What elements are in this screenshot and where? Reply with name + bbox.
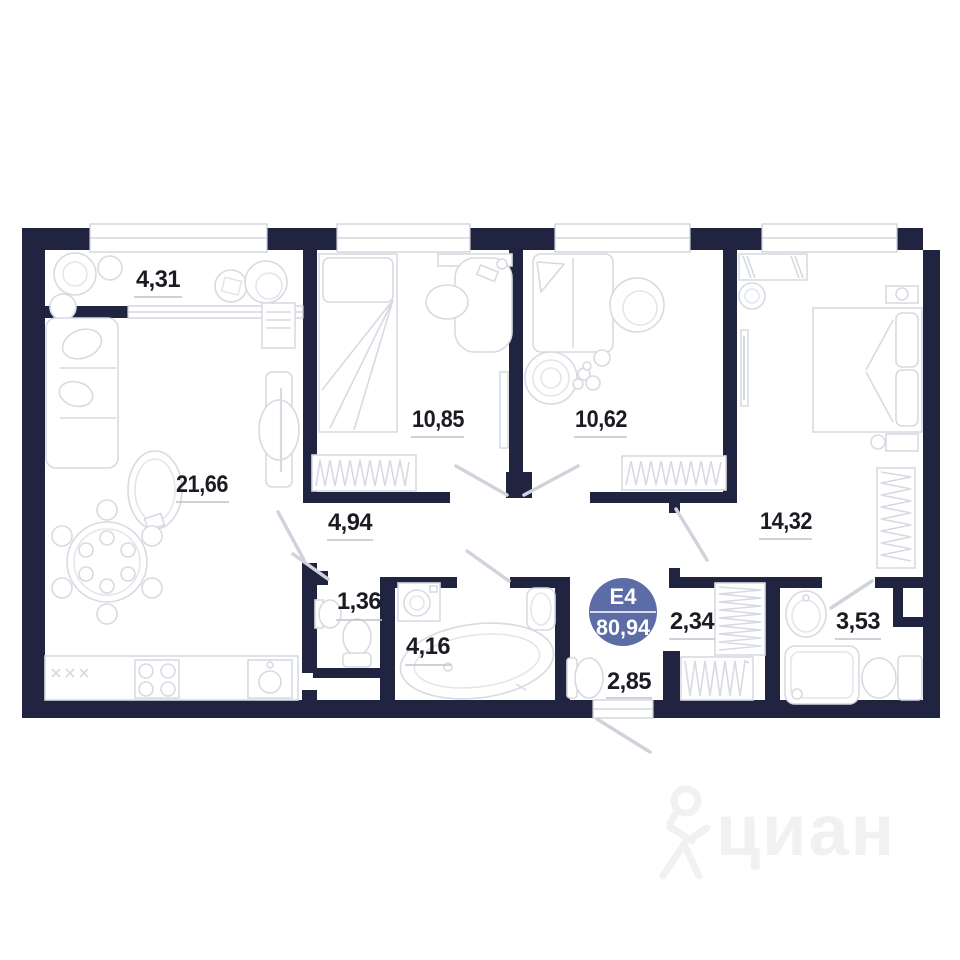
wall-entry-wardrobe <box>663 651 680 707</box>
wall-duct-bottom <box>893 617 923 627</box>
wall-wardrobe-shower <box>765 577 780 707</box>
wall-shower-top <box>875 577 923 588</box>
nightstand-icon <box>886 434 918 451</box>
door-shower-room <box>831 581 872 608</box>
svg-text:4,16: 4,16 <box>406 633 450 660</box>
shower-tray-icon <box>785 646 859 704</box>
door-bedroom3 <box>676 509 707 560</box>
room-label-wc: 1,36 <box>336 588 382 620</box>
wall-bedroom1-bottom <box>303 492 450 503</box>
door-bedroom1 <box>456 466 507 495</box>
badge-total-area: 80,94 <box>596 615 651 640</box>
shower-sink-icon <box>786 591 826 637</box>
round-chair-icon <box>610 278 664 332</box>
kitchen-counter-icon <box>45 656 298 700</box>
room-label-bedroom2: 10,62 <box>574 406 627 437</box>
hanger-rack-icon <box>681 583 765 700</box>
balcony-chair-icon <box>215 261 287 303</box>
door-jamb-bottom <box>669 568 680 588</box>
toilet-icon <box>567 658 603 698</box>
sink-icon <box>527 588 555 630</box>
mirror-icon <box>500 372 508 448</box>
svg-text:14,32: 14,32 <box>760 508 812 535</box>
svg-text:1,36: 1,36 <box>337 588 381 615</box>
room-label-shower: 3,53 <box>835 608 881 639</box>
plant-small-icon <box>573 350 610 390</box>
tv-icon <box>741 330 748 406</box>
svg-text:4,94: 4,94 <box>328 509 373 536</box>
watermark-text: циан <box>716 791 896 871</box>
wall-bottom-left <box>22 700 593 718</box>
dresser-icon <box>739 254 807 309</box>
washing-machine-icon <box>398 583 440 621</box>
radiator-vertical-icon <box>877 468 915 568</box>
loveseat-icon <box>533 254 613 352</box>
wall-right <box>923 250 940 718</box>
radiator-icon <box>622 456 726 490</box>
room-label-balcony: 4,31 <box>134 266 182 297</box>
rug-icon <box>525 352 577 404</box>
coffee-table-icon <box>128 451 182 530</box>
cian-logo-icon <box>663 789 707 876</box>
cian-watermark: циан <box>663 789 896 876</box>
bed-double-icon <box>813 286 922 451</box>
floorplan-svg: 4,31 21,66 10,85 10,62 14,32 4,94 1,36 <box>0 0 960 960</box>
toilet-icon <box>862 656 922 700</box>
room-label-living: 21,66 <box>176 471 229 502</box>
room-label-bedroom3: 14,32 <box>759 508 812 539</box>
sofa-icon <box>46 318 118 468</box>
door-entrance <box>597 719 650 752</box>
toilet-icon <box>343 619 371 667</box>
room-label-wardrobe: 2,34 <box>669 608 715 639</box>
room-label-bedroom1: 10,85 <box>411 406 464 437</box>
wall-left <box>22 228 45 718</box>
wall-wc-bathroom <box>380 577 395 707</box>
tv-console-icon <box>259 303 299 487</box>
svg-text:3,53: 3,53 <box>836 608 880 635</box>
svg-text:2,85: 2,85 <box>607 668 651 695</box>
svg-text:10,62: 10,62 <box>575 406 627 433</box>
door-living <box>278 512 304 560</box>
svg-text:10,85: 10,85 <box>412 406 464 433</box>
badge-unit: E4 <box>610 584 638 609</box>
svg-text:21,66: 21,66 <box>176 471 228 498</box>
floorplan-canvas: 4,31 21,66 10,85 10,62 14,32 4,94 1,36 <box>0 0 960 960</box>
door-bedroom2 <box>524 466 578 495</box>
clothes-rack-icon <box>312 455 416 491</box>
wall-bedroom2-bottom <box>590 492 737 503</box>
room-label-entry: 2,85 <box>606 668 652 698</box>
svg-text:4,31: 4,31 <box>136 266 180 293</box>
svg-text:2,34: 2,34 <box>670 608 715 635</box>
area-badge: E4 80,94 <box>589 578 657 646</box>
door-bathroom <box>467 551 509 581</box>
wall-bathroom-top-right <box>510 577 555 588</box>
desk-icon <box>426 254 512 352</box>
wall-wc-bottom <box>313 668 380 678</box>
wall-wc-left-stub <box>302 690 317 702</box>
room-label-hallway: 4,94 <box>327 509 373 540</box>
bed-single-icon <box>319 254 397 432</box>
